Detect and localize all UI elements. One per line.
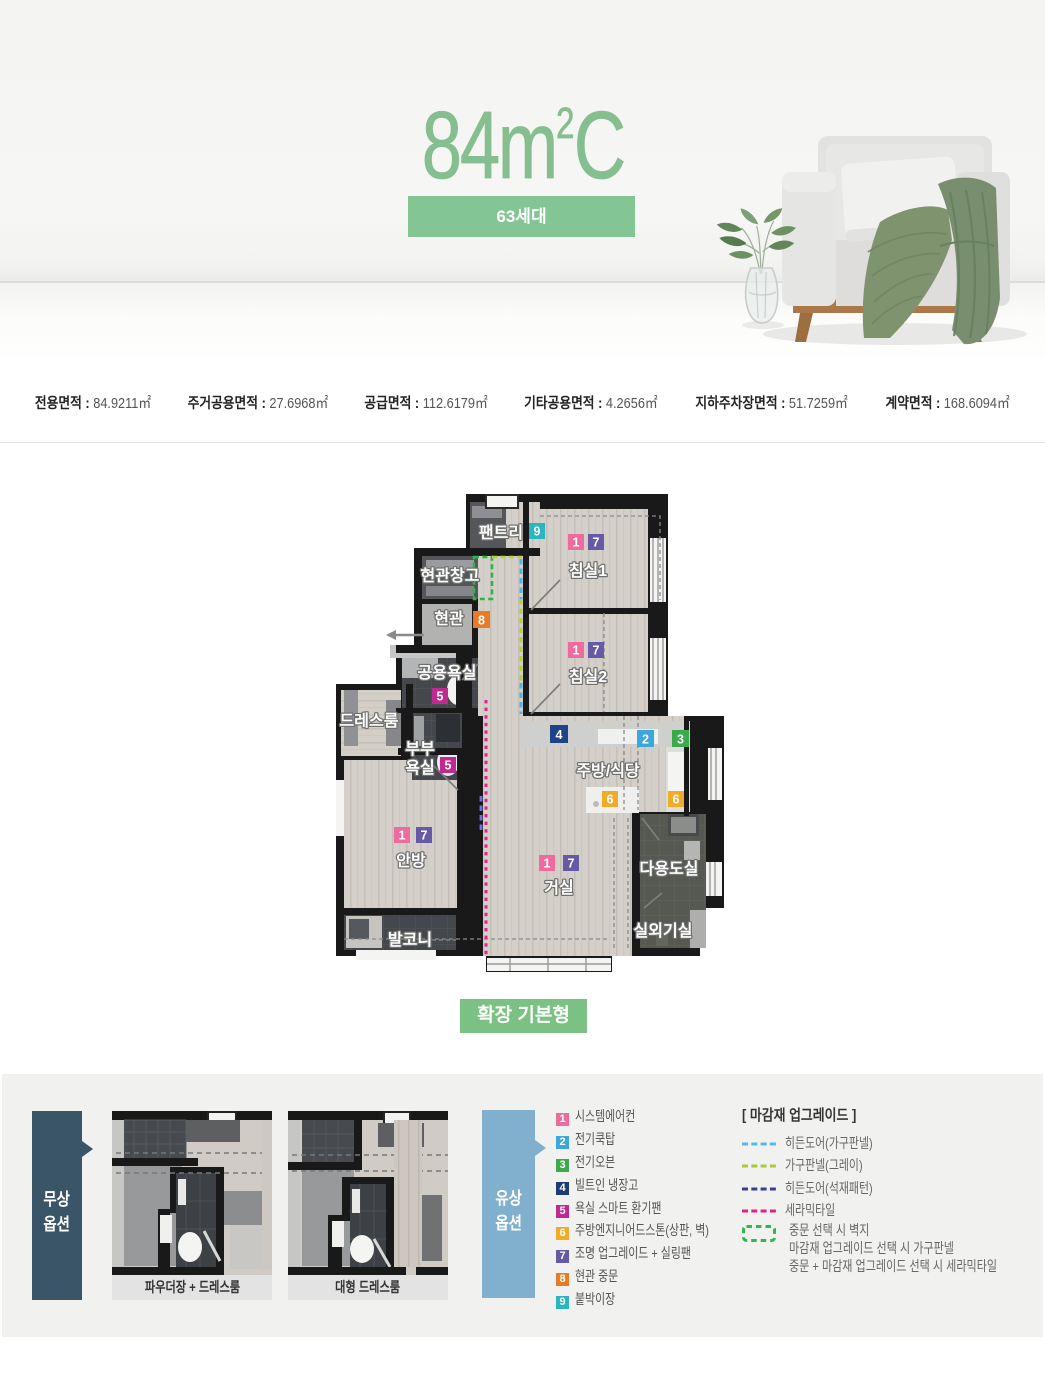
svg-text:6: 6 [673, 793, 680, 807]
svg-text:다용도실: 다용도실 [640, 860, 699, 878]
svg-text:1: 1 [399, 829, 406, 843]
svg-text:3: 3 [677, 733, 684, 747]
svg-text:9: 9 [534, 525, 541, 539]
svg-text:주방/식당: 주방/식당 [576, 762, 640, 780]
svg-text:발코니: 발코니 [388, 931, 432, 949]
svg-text:드레스룸: 드레스룸 [340, 712, 399, 730]
svg-text:실외기실: 실외기실 [634, 922, 693, 940]
svg-text:8: 8 [478, 614, 485, 628]
svg-text:5: 5 [445, 759, 452, 773]
svg-text:1: 1 [573, 536, 580, 550]
svg-text:1: 1 [573, 644, 580, 658]
svg-text:욕실: 욕실 [405, 759, 434, 777]
svg-text:부부: 부부 [405, 740, 435, 758]
svg-text:공용욕실: 공용욕실 [418, 664, 477, 682]
svg-text:7: 7 [421, 829, 428, 843]
svg-text:2: 2 [642, 733, 649, 747]
svg-text:7: 7 [593, 536, 600, 550]
svg-text:거실: 거실 [544, 879, 573, 897]
svg-text:6: 6 [607, 793, 614, 807]
svg-text:7: 7 [593, 644, 600, 658]
svg-text:5: 5 [437, 690, 444, 704]
svg-text:7: 7 [568, 857, 575, 871]
svg-text:현관: 현관 [434, 609, 464, 628]
svg-text:팬트리: 팬트리 [479, 524, 523, 542]
svg-text:침실2: 침실2 [569, 667, 607, 686]
svg-text:1: 1 [544, 857, 551, 871]
svg-text:현관창고: 현관창고 [421, 566, 480, 585]
svg-text:안방: 안방 [396, 852, 426, 870]
svg-text:4: 4 [556, 728, 563, 742]
svg-text:침실1: 침실1 [569, 561, 607, 580]
